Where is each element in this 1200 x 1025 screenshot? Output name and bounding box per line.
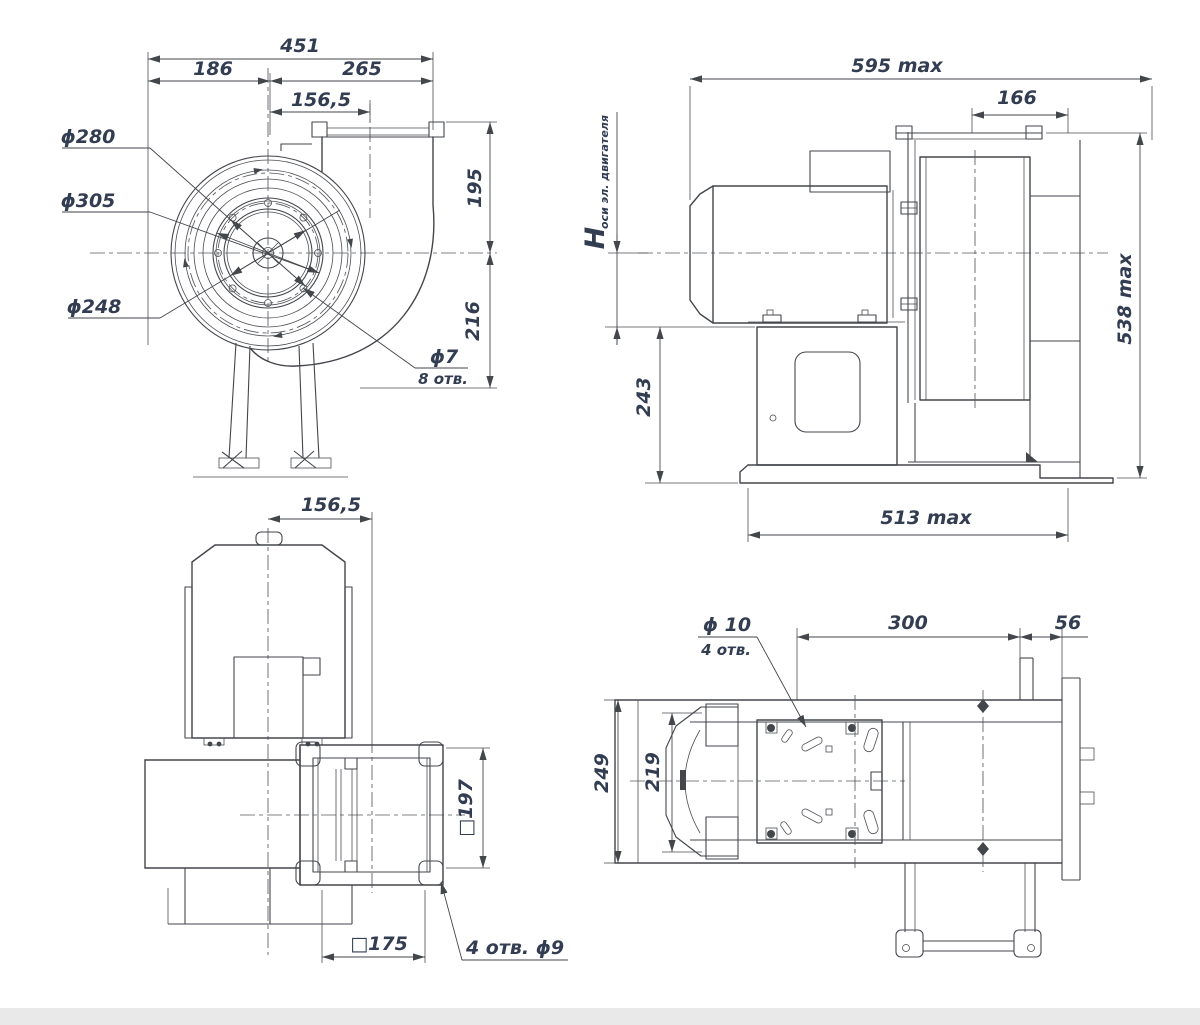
dim-top-outlet-offset: 156,5 [301, 494, 361, 516]
dim-top-flange-holes: 4 отв. ϕ9 [465, 937, 564, 959]
dim-front-holes-dia: ϕ7 [430, 346, 459, 368]
dim-front-right-width: 265 [342, 58, 382, 80]
dim-plan-length-300: 300 [888, 612, 928, 634]
dim-front-dia280: ϕ280 [61, 126, 116, 148]
top-view-linework [145, 512, 465, 955]
drawing-page: 451 186 265 156,5 ϕ280 ϕ305 ϕ248 195 216… [0, 0, 1200, 1025]
side-view-dimensions: 595 max 166 H оси эл. двигателя 243 538 … [580, 55, 1152, 542]
dim-plan-width-249: 249 [591, 753, 613, 793]
top-view: 156,5 □197 □175 4 отв. ϕ9 [145, 494, 568, 963]
dim-side-length-max: 595 max [851, 55, 943, 77]
side-view: 595 max 166 H оси эл. двигателя 243 538 … [580, 55, 1152, 542]
pedestal [757, 327, 897, 465]
front-view: 451 186 265 156,5 ϕ280 ϕ305 ϕ248 195 216… [61, 35, 497, 477]
dim-side-height-max: 538 max [1114, 253, 1136, 345]
dim-side-inlet-width: 166 [997, 87, 1037, 109]
dim-top-flange-outer: □197 [455, 778, 477, 836]
dim-front-total-width: 451 [279, 35, 320, 57]
dim-side-axis-height-note: оси эл. двигателя [598, 115, 611, 229]
dim-front-height-top: 195 [464, 168, 486, 208]
access-window [795, 352, 860, 432]
dim-plan-length-56: 56 [1055, 612, 1081, 634]
dim-front-dia305: ϕ305 [61, 190, 116, 212]
bottom-page-edge [0, 1008, 1200, 1025]
dim-front-height-bottom: 216 [462, 301, 484, 341]
dim-plan-holes-dia: ϕ 10 [703, 614, 751, 636]
fan-technical-drawing: 451 186 265 156,5 ϕ280 ϕ305 ϕ248 195 216… [0, 0, 1200, 1025]
dim-front-left-width: 186 [193, 58, 233, 80]
front-view-linework [90, 68, 497, 477]
top-view-dimensions: 156,5 □197 □175 4 отв. ϕ9 [268, 494, 568, 963]
plan-view-dimensions: ϕ 10 4 отв. 300 56 249 219 [591, 612, 1088, 863]
plan-view: ϕ 10 4 отв. 300 56 249 219 [591, 612, 1094, 957]
dim-front-dia248: ϕ248 [67, 296, 122, 318]
side-view-linework [638, 126, 1113, 483]
dim-top-flange-inner: □175 [350, 933, 408, 955]
dim-front-outlet-offset: 156,5 [291, 89, 351, 111]
dim-side-pedestal-height: 243 [633, 377, 655, 417]
mounting-plate [757, 720, 882, 843]
dim-front-holes-count: 8 отв. [418, 370, 468, 388]
plan-view-linework [615, 658, 1094, 957]
dim-plan-width-219: 219 [642, 752, 664, 792]
dim-plan-holes-count: 4 отв. [700, 641, 751, 659]
dim-side-base-length-max: 513 max [880, 507, 972, 529]
